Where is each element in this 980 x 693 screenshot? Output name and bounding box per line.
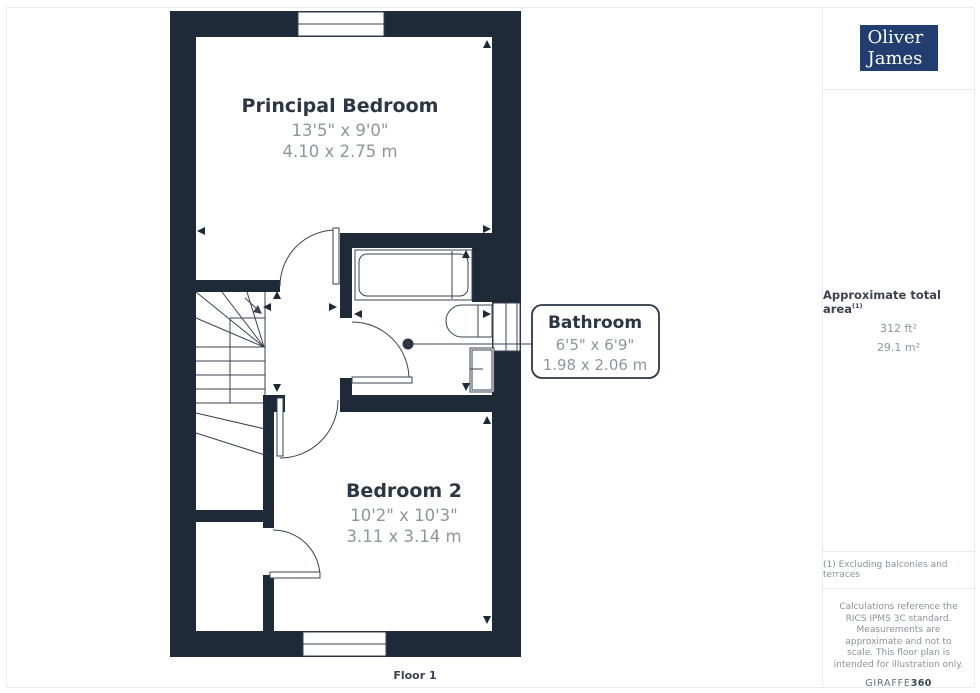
logo-section: Oliver James [823, 7, 974, 89]
principal-bedroom-dimensions-metric: 4.10 x 2.75 m [282, 142, 397, 161]
footnote-marker: (1) [852, 302, 862, 310]
principal-bedroom-label: Principal Bedroom [242, 95, 439, 117]
total-area-label: Approximate total area(1) [823, 288, 974, 316]
bedroom2-label: Bedroom 2 [346, 480, 462, 502]
bathroom-dimensions-metric: 1.98 x 2.06 m [543, 356, 648, 374]
bathtub-icon [355, 250, 472, 300]
floor-label: Floor 1 [393, 669, 436, 682]
bathroom-label: Bathroom [548, 313, 642, 333]
total-area-section: Approximate total area(1) 312 ft² 29.1 m… [823, 89, 974, 551]
disclaimer-section: Calculations reference the RICS IPMS 3C … [823, 588, 974, 686]
total-area-imperial: 312 ft² [880, 322, 917, 335]
footnote-section: (1) Excluding balconies and terraces [823, 551, 974, 588]
oliver-james-logo: Oliver James [860, 25, 938, 71]
bathroom-callout: Bathroom 6'5" x 6'9" 1.98 x 2.06 m [403, 305, 660, 378]
staircase-icon [196, 292, 265, 455]
total-area-metric: 29.1 m² [877, 341, 920, 354]
door-icon-bathroom [352, 322, 412, 383]
bedroom2-dimensions-imperial: 10'2" x 10'3" [350, 506, 458, 525]
toilet-icon [446, 305, 492, 337]
total-area-label-text: Approximate total area [823, 288, 941, 316]
sink-icon [470, 348, 494, 392]
window-icon-bottom [303, 632, 386, 656]
disclaimer-text: Calculations reference the RICS IPMS 3C … [832, 602, 966, 671]
giraffe360-brand: GIRAFFE360 [823, 678, 974, 689]
bathroom-dimensions-imperial: 6'5" x 6'9" [556, 336, 635, 354]
principal-bedroom-dimensions-imperial: 13'5" x 9'0" [292, 121, 389, 140]
footnote-text: (1) Excluding balconies and terraces [823, 560, 974, 580]
door-icon-bedroom2 [277, 398, 338, 458]
room-labels: Principal Bedroom 13'5" x 9'0" 4.10 x 2.… [242, 95, 462, 546]
leader-dot [403, 339, 414, 350]
logo-line2: James [868, 48, 938, 69]
door-icon-cupboard [270, 530, 320, 578]
floorplan-page: Bathroom 6'5" x 6'9" 1.98 x 2.06 m [0, 0, 980, 693]
info-sidebar: Oliver James Approximate total area(1) 3… [822, 7, 974, 686]
brand-suffix: 360 [911, 678, 932, 689]
logo-line1: Oliver [868, 27, 938, 48]
window-icon-top [298, 12, 384, 36]
brand-name: GIRAFFE [865, 678, 910, 689]
bedroom2-dimensions-metric: 3.11 x 3.14 m [346, 527, 461, 546]
door-icon-principal-bedroom [280, 228, 339, 286]
